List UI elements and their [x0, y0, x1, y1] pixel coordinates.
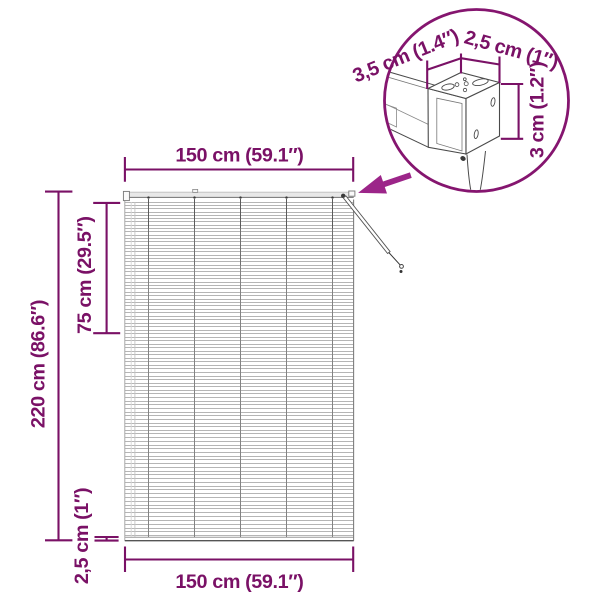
svg-text:2,5 cm (1″): 2,5 cm (1″) [71, 488, 93, 584]
svg-text:3 cm (1.2″): 3 cm (1.2″) [527, 62, 549, 158]
svg-text:150 cm (59.1″): 150 cm (59.1″) [175, 144, 303, 166]
svg-text:75 cm (29.5″): 75 cm (29.5″) [74, 216, 96, 334]
svg-text:150 cm (59.1″): 150 cm (59.1″) [175, 571, 303, 593]
svg-text:220 cm (86.6″): 220 cm (86.6″) [27, 300, 49, 428]
